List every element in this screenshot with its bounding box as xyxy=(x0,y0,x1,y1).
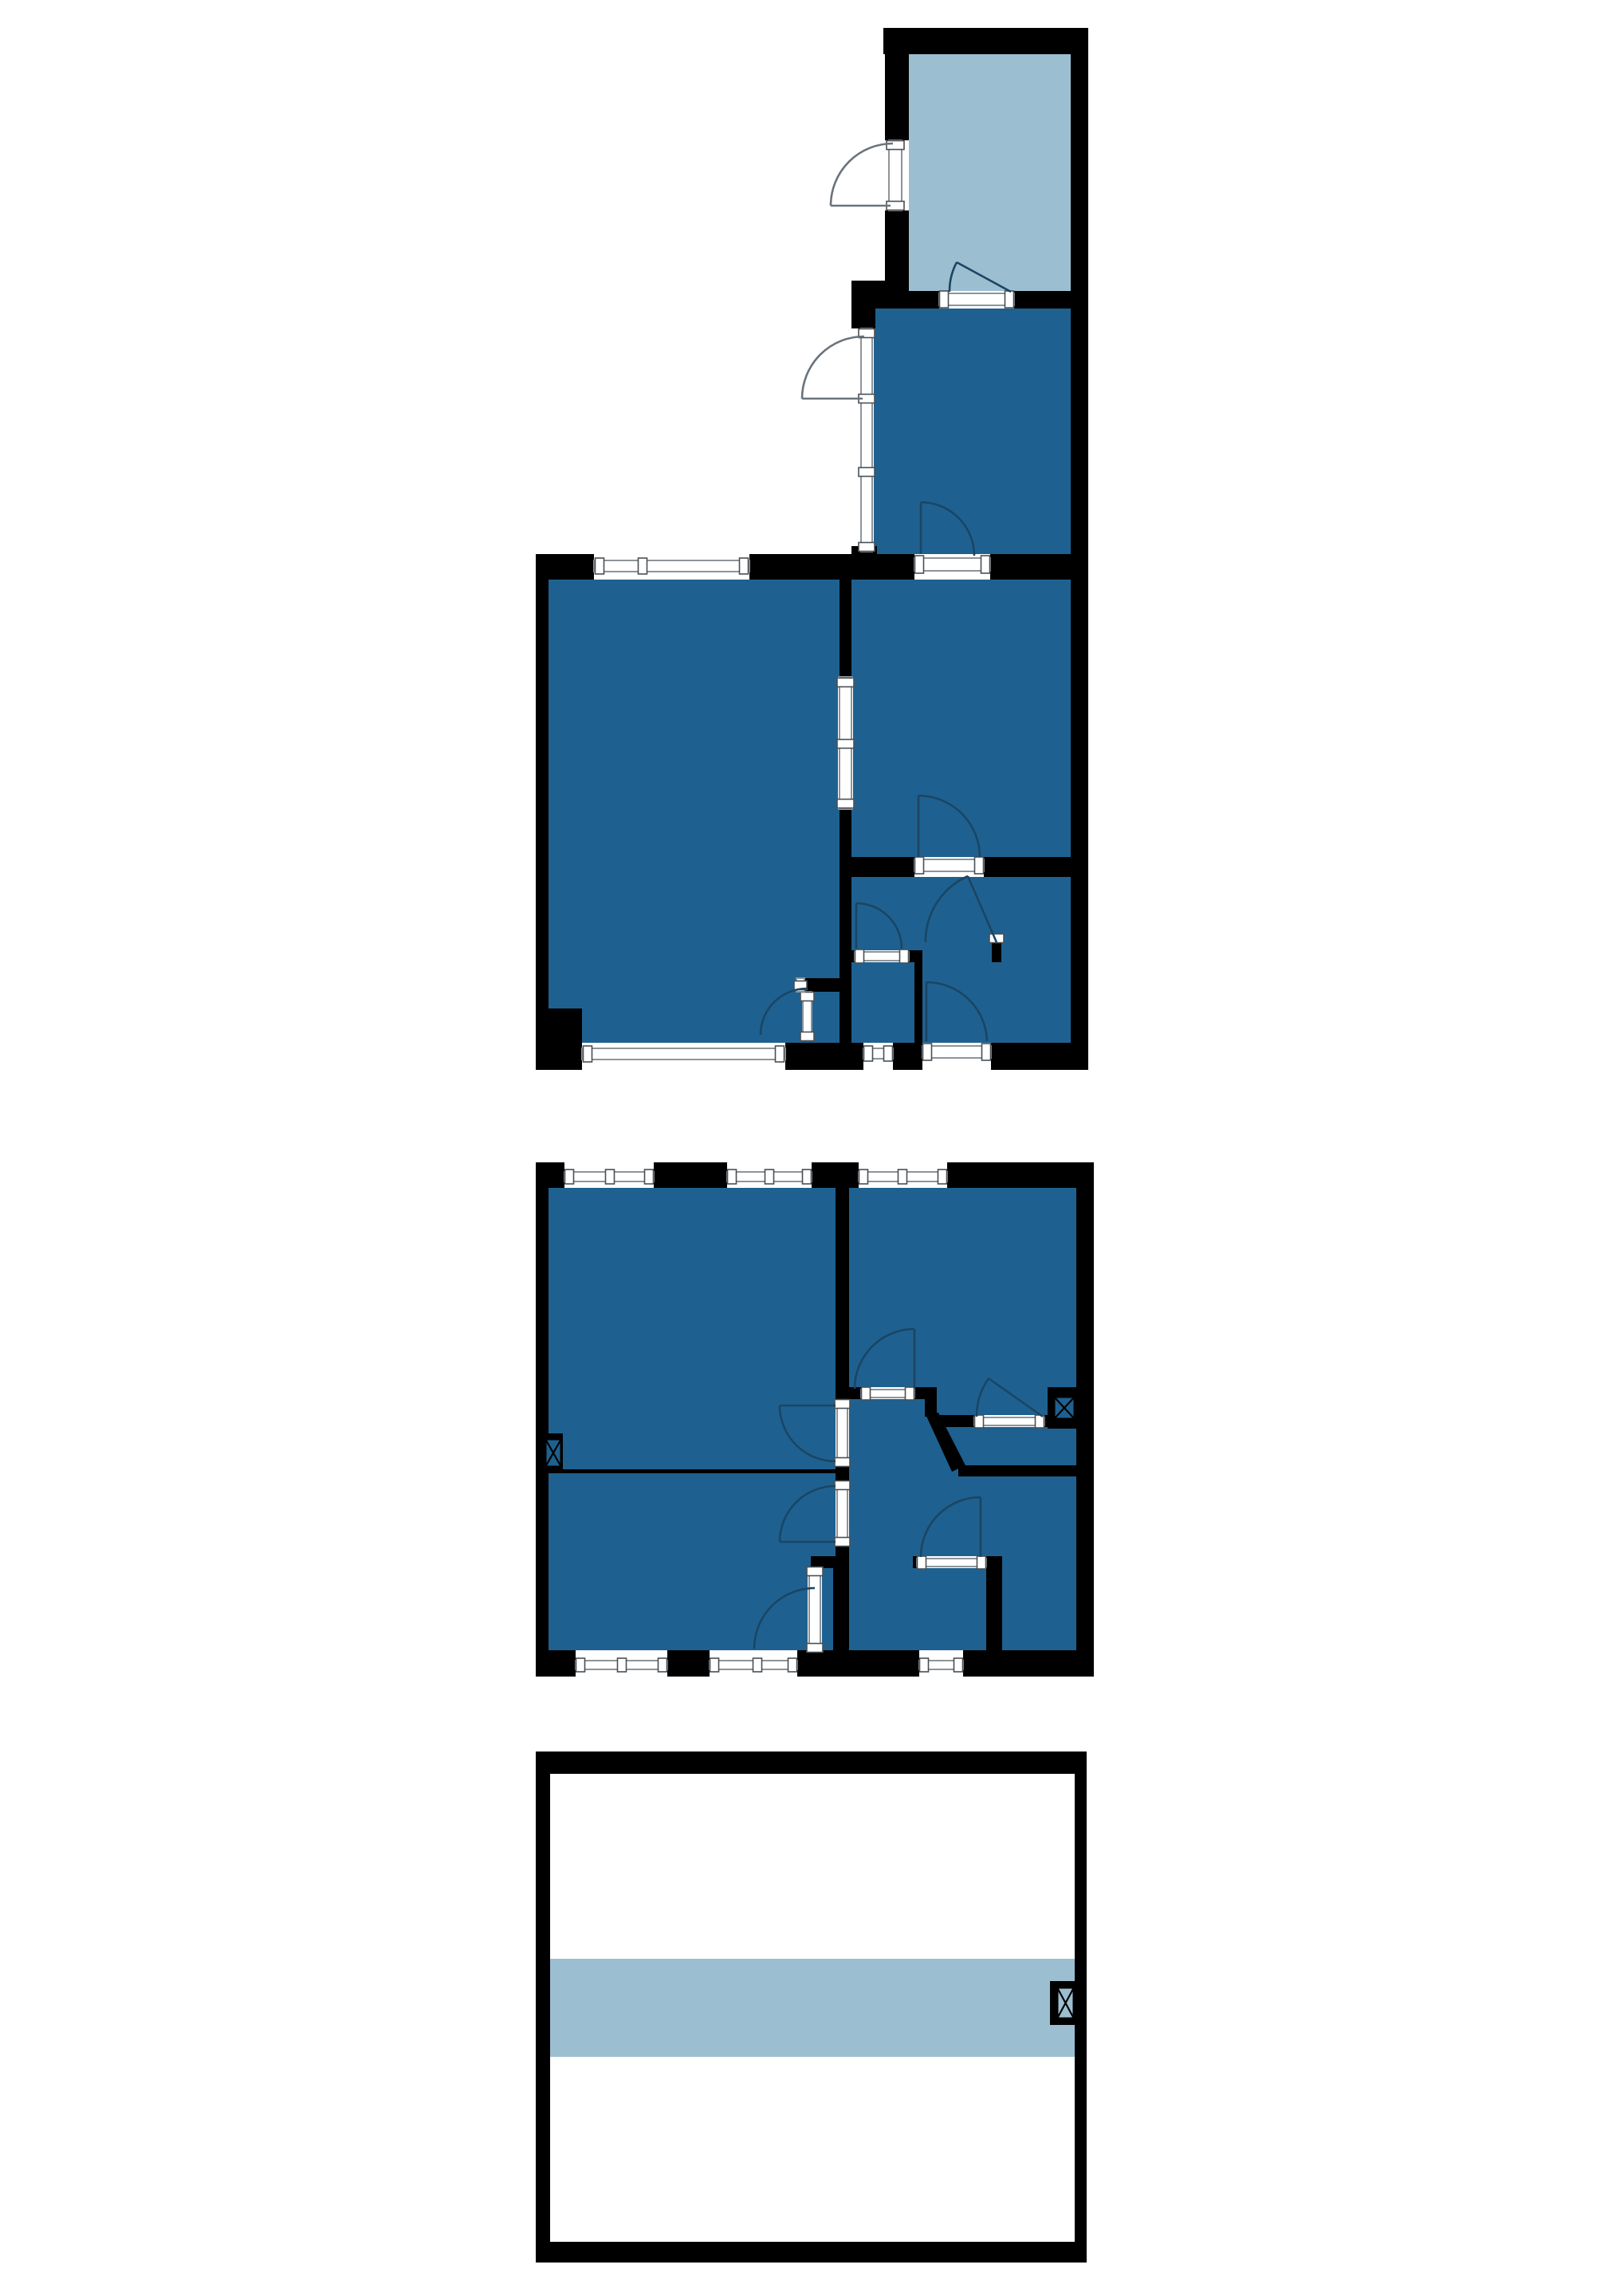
window-post xyxy=(887,141,904,150)
window-glazing xyxy=(594,560,749,572)
window-glazing xyxy=(917,1559,986,1567)
window-post xyxy=(855,949,864,963)
window-glazing xyxy=(889,140,902,210)
window-post xyxy=(938,1170,947,1184)
floor-plan-canvas xyxy=(0,0,1624,2296)
window-post xyxy=(584,1046,592,1062)
window-post xyxy=(788,1658,797,1672)
window-post xyxy=(800,1032,814,1041)
window-post xyxy=(975,857,984,874)
floor-plan-page xyxy=(0,0,1624,2296)
wall xyxy=(836,1467,849,1480)
wall xyxy=(885,210,909,287)
window-post xyxy=(565,1170,574,1184)
window-post xyxy=(915,857,924,874)
wall xyxy=(914,950,922,1043)
wall xyxy=(883,28,1088,54)
window-post xyxy=(975,1415,984,1428)
window-post xyxy=(837,740,854,749)
wall xyxy=(840,580,851,677)
window-post xyxy=(576,1658,585,1672)
window-post xyxy=(728,1170,737,1184)
wall xyxy=(536,2242,1087,2263)
wall xyxy=(536,554,549,1070)
window-post xyxy=(899,1170,907,1184)
window-post xyxy=(596,558,604,574)
window-post xyxy=(954,1658,963,1672)
wall xyxy=(1071,28,1088,1070)
window-glazing xyxy=(922,1046,991,1058)
window-post xyxy=(837,678,854,687)
room-main-block xyxy=(549,578,1071,1044)
window-glazing xyxy=(837,1404,847,1462)
middle-floor-plan xyxy=(536,1162,1094,1677)
room-middle xyxy=(861,309,1071,556)
wall xyxy=(549,1469,836,1473)
wall xyxy=(536,1751,550,2263)
window-glazing xyxy=(974,1417,1044,1425)
window-post xyxy=(807,1567,823,1576)
wall xyxy=(536,1008,582,1043)
wall xyxy=(836,1547,849,1556)
window-post xyxy=(884,1046,893,1061)
wall xyxy=(885,28,909,140)
wall xyxy=(836,1188,849,1399)
window-post xyxy=(918,1556,926,1569)
room-annex-light xyxy=(909,53,1071,291)
window-glazing xyxy=(914,859,984,871)
window-post xyxy=(906,1387,914,1400)
window-post xyxy=(765,1170,774,1184)
wall xyxy=(851,281,909,309)
window-post xyxy=(835,1458,850,1467)
window-post xyxy=(920,1658,929,1672)
window-post xyxy=(859,468,875,477)
window-post xyxy=(1036,1415,1044,1428)
window-post xyxy=(977,1556,986,1569)
window-post xyxy=(753,1658,762,1672)
window-glazing xyxy=(809,1575,820,1644)
wall xyxy=(851,309,875,328)
window-post xyxy=(859,1170,868,1184)
window-post xyxy=(710,1658,719,1672)
wall xyxy=(536,1162,549,1677)
window-post xyxy=(618,1658,627,1672)
window-post xyxy=(659,1658,667,1672)
window-glazing xyxy=(837,1485,847,1542)
window-post xyxy=(837,800,854,808)
window-post xyxy=(807,1644,823,1653)
window-post xyxy=(900,949,909,963)
window-post xyxy=(606,1170,615,1184)
window-glazing xyxy=(914,558,990,571)
window-post xyxy=(645,1170,654,1184)
wall xyxy=(925,1387,937,1417)
bottom-floor-plan xyxy=(536,1751,1087,2263)
window-glazing xyxy=(939,293,1014,305)
window-post xyxy=(915,556,924,573)
window-post xyxy=(835,1538,850,1547)
window-post xyxy=(923,1044,932,1060)
window-post xyxy=(864,1046,873,1061)
wall xyxy=(992,943,1001,962)
window-glazing xyxy=(861,328,872,552)
window-post xyxy=(639,558,647,574)
wall xyxy=(986,1556,1002,1650)
window-post xyxy=(835,1400,850,1409)
window-post xyxy=(940,291,949,308)
wall xyxy=(536,1751,1087,1774)
window-post xyxy=(740,558,749,574)
window-glazing xyxy=(582,1048,785,1060)
window-post xyxy=(1005,291,1014,308)
window-post xyxy=(803,1170,812,1184)
window-post xyxy=(776,1046,784,1062)
wall xyxy=(840,809,851,1043)
window-post xyxy=(859,543,875,552)
window-post xyxy=(862,1387,871,1400)
window-post xyxy=(800,993,814,1001)
window-post xyxy=(981,556,990,573)
highlight-band xyxy=(550,1959,1075,2057)
window-post xyxy=(982,1044,991,1060)
wall xyxy=(833,1568,849,1650)
wall xyxy=(958,1465,1076,1476)
window-post xyxy=(835,1481,850,1490)
